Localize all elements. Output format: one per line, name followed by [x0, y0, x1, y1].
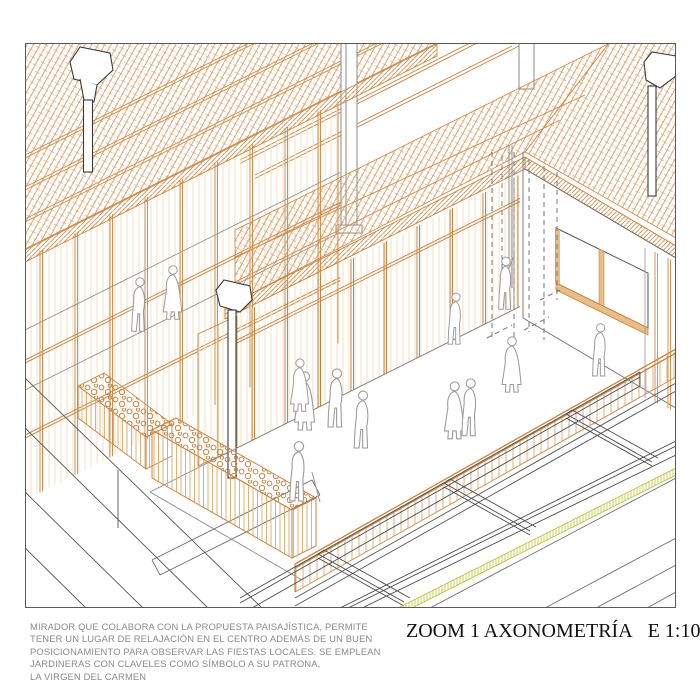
- title-block: ZOOM 1 AXONOMETRÍA E 1:100: [406, 620, 700, 643]
- caption-line: TENER UN LUGAR DE RELAJACIÓN EN EL CENTR…: [30, 633, 381, 645]
- view-title: ZOOM 1 AXONOMETRÍA: [406, 620, 633, 642]
- drawing-sheet: MIRADOR QUE COLABORA CON LA PROPUESTA PA…: [0, 0, 700, 700]
- caption-line: LA VIRGEN DEL CARMEN: [30, 671, 381, 683]
- caption-line: POSICIONAMIENTO PARA OBSERVAR LAS FIESTA…: [30, 646, 381, 658]
- axonometric-drawing: [0, 0, 700, 700]
- caption-line: MIRADOR QUE COLABORA CON LA PROPUESTA PA…: [30, 621, 381, 633]
- caption-line: JARDINERAS CON CLAVELES COMO SÍMBOLO A S…: [30, 658, 381, 670]
- street-lines: [430, 478, 676, 608]
- caption-text: MIRADOR QUE COLABORA CON LA PROPUESTA PA…: [30, 621, 381, 683]
- scale-label: E 1:100: [648, 620, 700, 642]
